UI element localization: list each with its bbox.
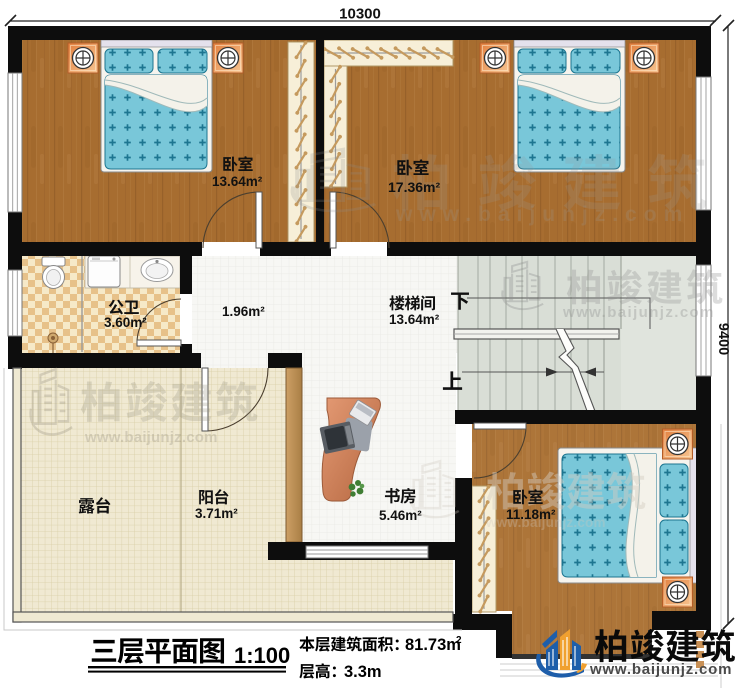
svg-text:2: 2 <box>456 635 462 646</box>
svg-text:3.3m: 3.3m <box>344 663 382 681</box>
svg-text:www.baijunjz.com: www.baijunjz.com <box>589 661 732 678</box>
svg-text:www.baijunjz.com: www.baijunjz.com <box>395 203 689 226</box>
svg-text:www.baijunjz.com: www.baijunjz.com <box>562 304 715 321</box>
svg-text:9400: 9400 <box>715 323 731 355</box>
svg-text:1.96m²: 1.96m² <box>222 304 265 319</box>
svg-text:1:100: 1:100 <box>234 643 290 668</box>
svg-text:10300: 10300 <box>339 6 381 23</box>
svg-text:3.71m²: 3.71m² <box>195 506 238 521</box>
svg-text:3.60m²: 3.60m² <box>104 315 147 330</box>
svg-text:www.baijunjz.com: www.baijunjz.com <box>84 429 218 446</box>
svg-text:11.18m²: 11.18m² <box>506 507 556 522</box>
svg-text:13.64m²: 13.64m² <box>389 312 440 327</box>
svg-text:81.73m: 81.73m <box>405 636 461 654</box>
svg-text:17.36m²: 17.36m² <box>388 179 440 195</box>
svg-text:5.46m²: 5.46m² <box>379 508 422 523</box>
svg-text:13.64m²: 13.64m² <box>212 174 263 189</box>
